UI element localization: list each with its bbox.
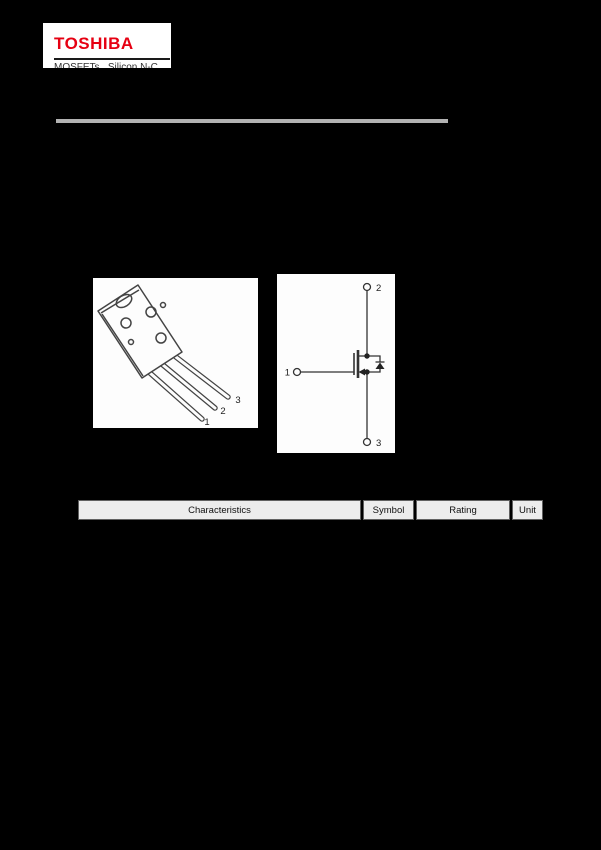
table-header-unit: Unit [512,500,543,520]
symbol-gate-pin-label: 1 [285,368,290,379]
logo-underline [54,58,170,60]
table-header-characteristics: Characteristics [78,500,361,520]
symbol-source-pin-label: 3 [376,438,381,449]
toshiba-logo-block: TOSHIBA MOSFETs Silicon N-C [43,23,171,68]
table-header-symbol: Symbol [363,500,414,520]
package-pin-3-label: 3 [235,395,240,406]
package-pin-2-label: 2 [220,406,225,417]
package-drawing-figure: 1 2 3 [93,278,258,428]
mosfet-circuit-symbol-icon: 2 3 1 [277,274,395,453]
toshiba-logo: TOSHIBA [54,34,134,54]
mosfet-symbol-figure: 2 3 1 [277,274,395,453]
datasheet-page: TOSHIBA MOSFETs Silicon N-C [0,0,601,850]
ratings-table-header-row: Characteristics Symbol Rating Unit [78,500,543,520]
header-divider [56,119,448,123]
product-tagline-clipped: MOSFETs Silicon N-C [54,62,158,68]
to-3p-package-icon: 1 2 3 [93,278,258,428]
table-header-rating: Rating [416,500,510,520]
symbol-drain-pin-label: 2 [376,283,381,294]
package-pin-1-label: 1 [204,417,209,428]
